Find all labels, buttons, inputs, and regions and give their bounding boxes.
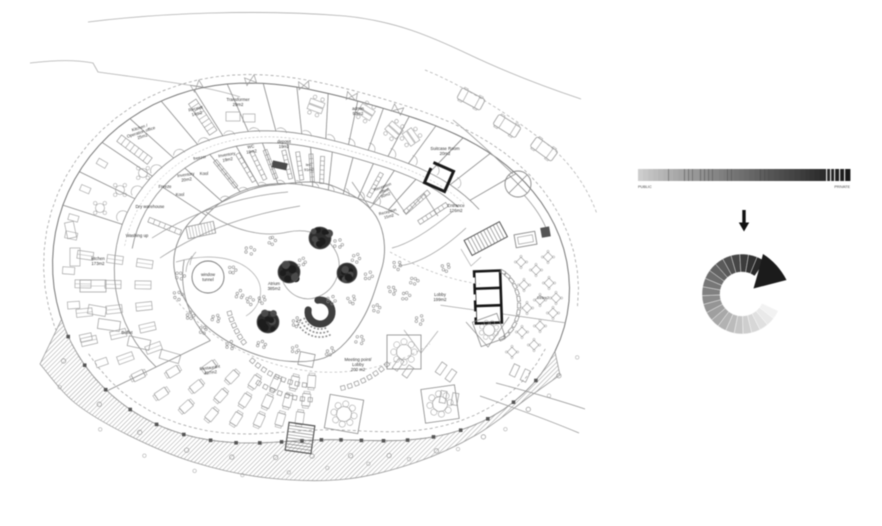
svg-text:20m2: 20m2 (440, 151, 451, 156)
svg-text:199m2: 199m2 (433, 297, 447, 302)
svg-text:Buffet: Buffet (121, 330, 133, 335)
svg-text:91m2: 91m2 (304, 167, 315, 172)
svg-text:29m2: 29m2 (233, 102, 244, 107)
svg-text:Kool: Kool (200, 171, 208, 176)
svg-text:Kool: Kool (176, 192, 184, 197)
svg-text:173m2: 173m2 (91, 261, 105, 266)
svg-text:93m2: 93m2 (353, 111, 364, 116)
svg-text:PUBLIC: PUBLIC (638, 185, 652, 189)
svg-text:126m2: 126m2 (449, 208, 463, 213)
svg-text:Freeze: Freeze (158, 184, 172, 189)
svg-text:Washing up: Washing up (126, 233, 149, 238)
svg-text:165m2: 165m2 (537, 295, 550, 300)
svg-text:tunnel: tunnel (202, 277, 213, 282)
svg-text:385m2: 385m2 (268, 286, 281, 291)
svg-text:PRIVATE: PRIVATE (834, 185, 850, 189)
svg-text:200 m2: 200 m2 (351, 367, 366, 372)
svg-text:Dry warehouse: Dry warehouse (136, 204, 166, 209)
svg-text:19m2: 19m2 (279, 144, 290, 149)
